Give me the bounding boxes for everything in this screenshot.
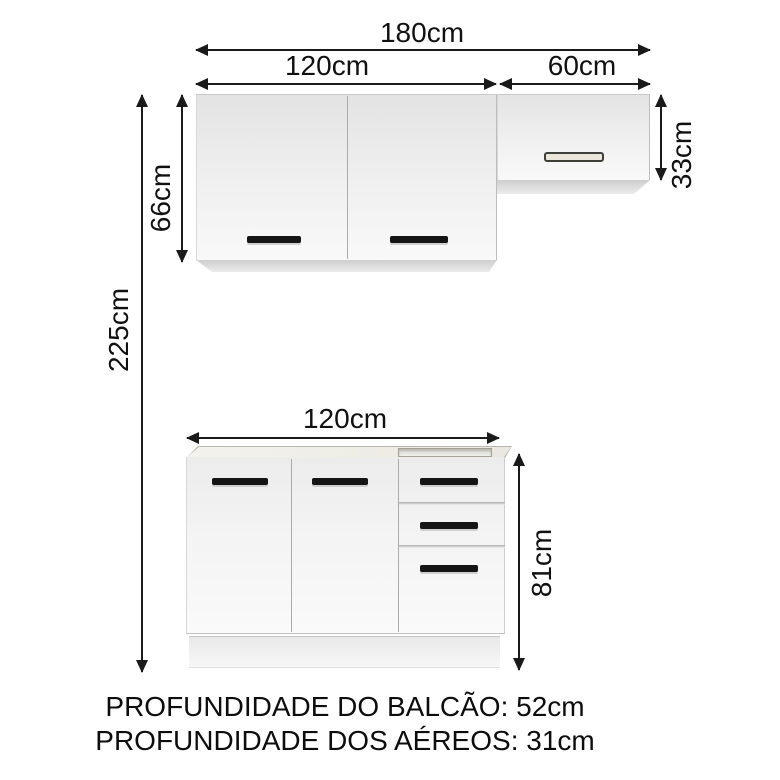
arrowhead-right-icon — [487, 432, 500, 444]
dim-upper-right-height-label: 33cm — [667, 121, 697, 189]
dim-upper-left-width-line — [196, 83, 496, 85]
arrowhead-right-icon — [484, 78, 497, 90]
arrowhead-down-icon — [136, 660, 148, 673]
door-handle — [390, 236, 448, 243]
arrowhead-down-icon — [176, 250, 188, 263]
base-cabinet — [186, 446, 519, 670]
dim-total-height-line — [141, 95, 143, 672]
upper-cabinet-right — [497, 94, 650, 194]
upper-cabinet-left-door-divider — [347, 96, 348, 259]
note-counter-depth: PROFUNDIDADE DO BALCÃO: 52cm — [0, 690, 690, 724]
upper-cabinet-left-underside — [196, 260, 497, 272]
base-cabinet-plinth — [189, 636, 500, 668]
dim-total-width-label: 180cm — [380, 18, 464, 48]
door-handle — [212, 478, 268, 485]
dim-upper-right-height-line — [660, 95, 662, 180]
arrowhead-up-icon — [176, 94, 188, 107]
door-handle — [312, 478, 368, 485]
arrowhead-left-icon — [195, 78, 208, 90]
dim-upper-right-width-line — [500, 83, 650, 85]
dim-upper-left-height-line — [181, 95, 183, 262]
dim-upper-left-width-label: 120cm — [285, 51, 369, 81]
arrowhead-up-icon — [136, 94, 148, 107]
arrowhead-up-icon — [655, 94, 667, 107]
base-cabinet-body — [186, 457, 505, 634]
drawer-separator — [399, 502, 505, 505]
dim-upper-left-height-label: 66cm — [146, 164, 176, 232]
upper-cabinet-right-face — [497, 94, 650, 180]
drawer-separator — [399, 545, 505, 548]
sink-basin — [398, 448, 492, 457]
arrowhead-left-icon — [195, 44, 208, 56]
arrowhead-left-icon — [186, 432, 199, 444]
base-cabinet-door-divider — [291, 459, 292, 632]
door-handle — [247, 236, 301, 243]
drawer-handle — [420, 478, 478, 485]
kitchen-cabinet-dimension-diagram: 180cm 120cm 60cm 225cm 66cm 33cm — [0, 0, 780, 780]
drawer-handle — [420, 522, 478, 529]
dim-base-height-label: 81cm — [527, 529, 557, 597]
dim-base-width-label: 120cm — [303, 404, 387, 434]
depth-notes: PROFUNDIDADE DO BALCÃO: 52cm PROFUNDIDAD… — [0, 690, 690, 758]
drawer-handle — [420, 565, 478, 572]
upper-cabinet-right-underside — [497, 180, 650, 194]
dim-base-width-line — [187, 437, 499, 439]
door-handle — [544, 152, 604, 162]
upper-cabinet-left — [196, 94, 497, 272]
arrowhead-right-icon — [638, 78, 651, 90]
arrowhead-right-icon — [638, 44, 651, 56]
dim-total-height-label: 225cm — [104, 288, 134, 372]
dim-upper-right-width-label: 60cm — [548, 51, 616, 81]
note-wall-cabinet-depth: PROFUNDIDADE DOS AÉREOS: 31cm — [0, 724, 690, 758]
arrowhead-left-icon — [499, 78, 512, 90]
